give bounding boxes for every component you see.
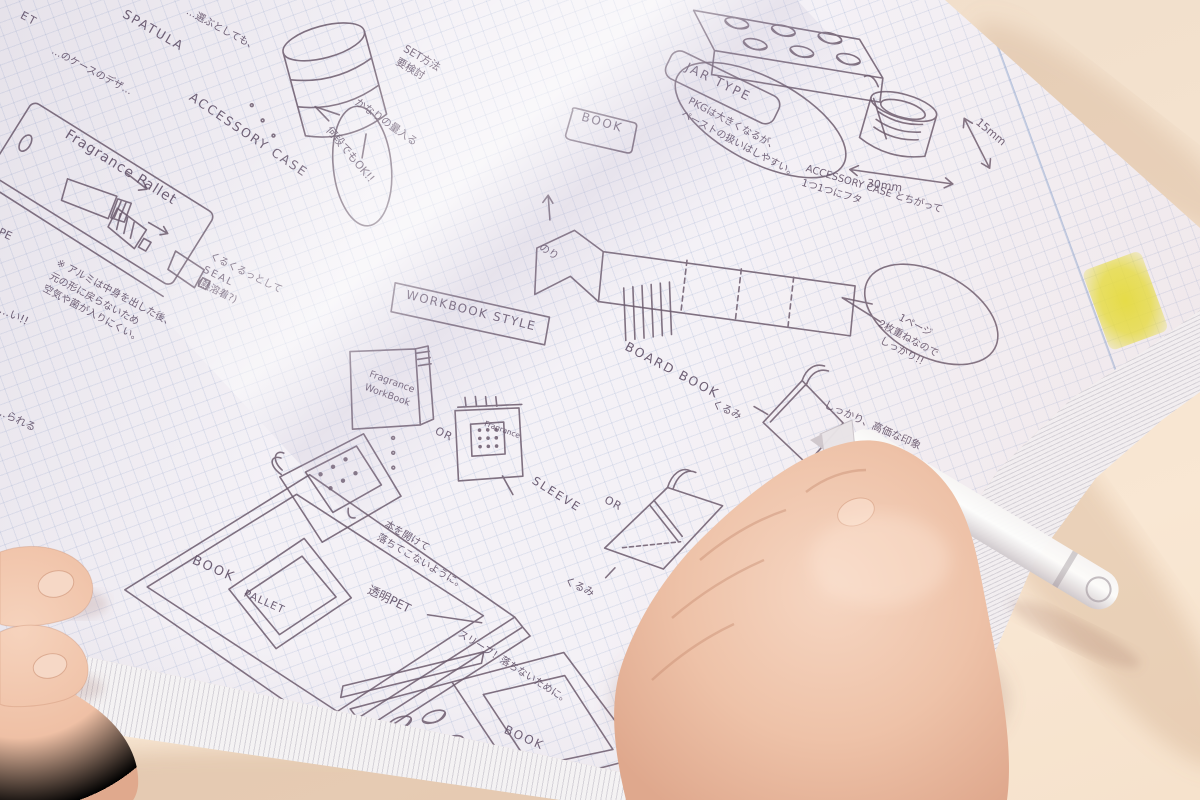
right-hand: [614, 440, 1009, 800]
pen-tip: [810, 434, 824, 450]
hand-highlight: [810, 514, 950, 606]
notebook-sketch-photo: ET SPATULA …のケースのデザ… …選ぶとしても、 Fragrance …: [0, 0, 1200, 800]
left-hand: [0, 546, 138, 800]
hands-layer: [0, 0, 1200, 800]
right-hand-silhouette: [614, 440, 1009, 800]
pen-shadow: [1004, 590, 1146, 678]
